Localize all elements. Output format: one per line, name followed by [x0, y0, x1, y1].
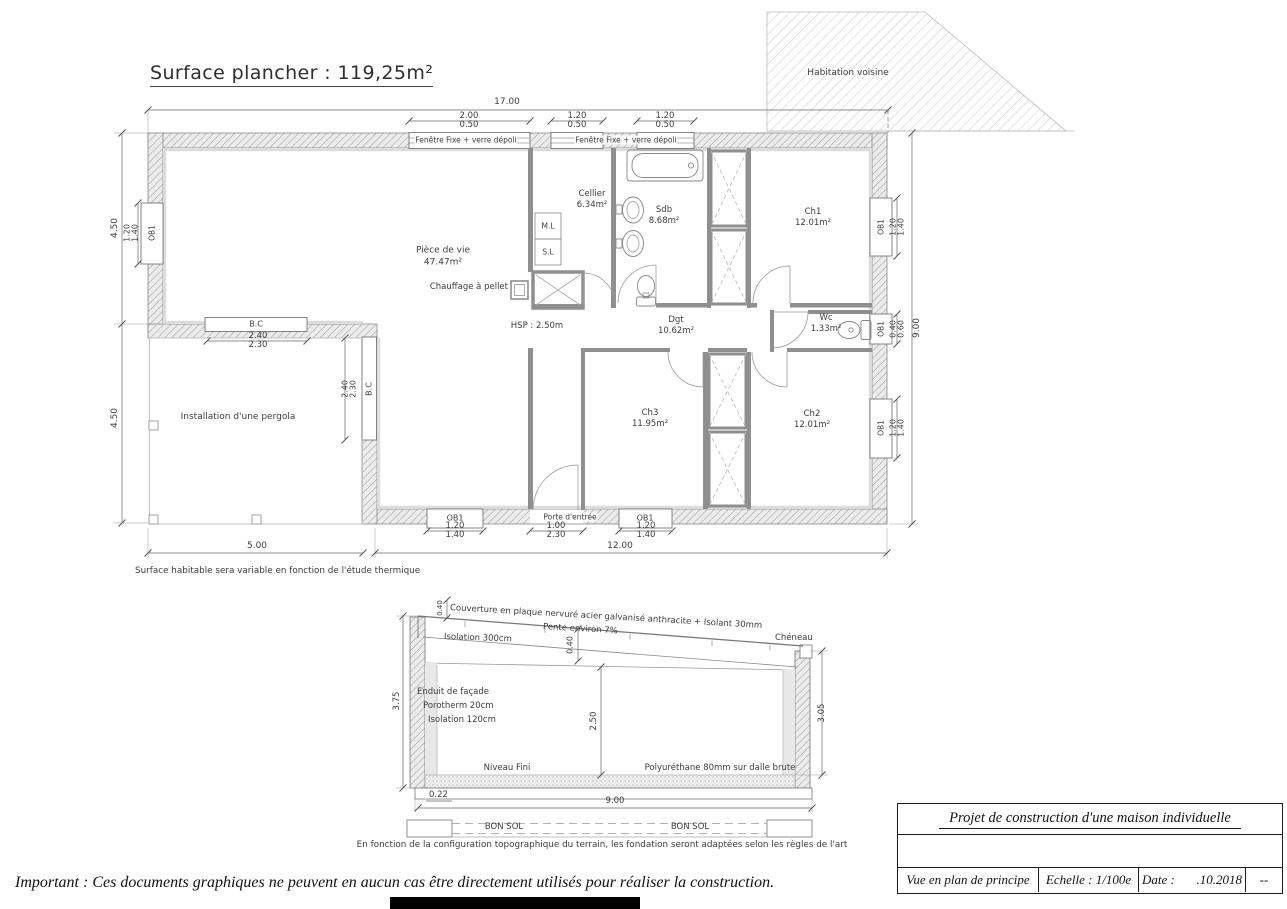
ob1-right-ch2-label: OB1 — [877, 420, 886, 436]
floor-plan-sheet: Surface plancher : 119,25m² Habitation v… — [0, 0, 1287, 909]
wc-door-swing — [772, 312, 808, 348]
redaction-bar — [390, 897, 640, 909]
hsp-label: HSP : 2.50m — [511, 321, 563, 331]
ob1-right-ch1-label: OB1 — [877, 219, 886, 235]
date-cell: Date : .10.2018 — [1138, 868, 1245, 892]
section-bonsol-right: BON SOL — [671, 822, 709, 832]
cellier-door-swing — [583, 273, 615, 305]
room-cellier: Cellier6.34m² — [577, 189, 608, 211]
footing-right — [767, 820, 812, 837]
bc-top-label: B.C — [249, 320, 263, 329]
important-note: Important : Ces documents graphiques ne … — [15, 874, 774, 892]
window-label-2: Fenêtre Fixe + verre dépoli — [574, 136, 677, 145]
closets — [709, 151, 747, 506]
room-piece-de-vie: Pièce de vie47.47m² — [416, 245, 470, 268]
gutter — [800, 645, 812, 658]
dim-left-lower: 4.50 — [110, 408, 120, 428]
dim-front-door: 1.002.30 — [547, 522, 566, 540]
dim-window-3: 1.200.50 — [656, 112, 675, 130]
room-ch2: Ch212.01m² — [794, 409, 830, 431]
door-swings — [533, 265, 808, 510]
page-title: Surface plancher : 119,25m² — [150, 62, 433, 87]
section-note: En fonction de la configuration topograp… — [357, 840, 848, 850]
plan-note: Surface habitable sera variable en fonct… — [135, 566, 420, 576]
dryer-label: S.L — [542, 248, 553, 257]
toilet-sdb — [637, 276, 656, 307]
room-ch1: Ch112.01m² — [795, 207, 831, 229]
dim-right-ch2: 1.201.40 — [890, 419, 907, 437]
section-dim-width: 9.00 — [606, 796, 625, 806]
neighbor-label: Habitation voisine — [807, 68, 888, 78]
project-title: Projet de construction d'une maison indi… — [939, 810, 1241, 829]
dim-left-upper: 4.50 — [110, 218, 120, 238]
section-bonsol-left: BON SOL — [485, 822, 523, 832]
pellet-stove — [511, 281, 528, 299]
dim-left-window: 1.201.40 — [124, 224, 141, 242]
section-dim-interior-height: 2.50 — [589, 712, 599, 731]
section-dim-roof-edge: 0.40 — [436, 600, 444, 616]
section-wall-label-1: Enduit de façade — [417, 687, 489, 697]
scale-cell: Echelle : 1/100e — [1038, 868, 1138, 892]
dim-window-1: 2.000.50 — [460, 112, 479, 130]
pellet-stove-label: Chauffage à pellet — [420, 282, 508, 292]
bathtub — [627, 150, 703, 181]
ch3-door-swing — [668, 352, 703, 387]
pergola-label: Installation d'une pergola — [181, 412, 296, 422]
ob1-right-wc-label: OB1 — [877, 321, 886, 337]
window-label-1: Fenêtre Fixe + verre dépoli — [414, 136, 517, 145]
title-block-blank-row — [898, 834, 1282, 867]
title-block-info-row: Vue en plan de principe Echelle : 1/100e… — [898, 867, 1282, 892]
section-poly-label: Polyuréthane 80mm sur dalle brute — [645, 763, 796, 773]
dim-bottom-right: 12.00 — [607, 541, 633, 551]
pergola-outline — [149, 338, 363, 524]
dim-right-wc: 0.400.60 — [890, 320, 907, 338]
dim-top-total: 17.00 — [494, 97, 520, 107]
view-name-cell: Vue en plan de principe — [898, 868, 1038, 892]
dim-window-2: 1.200.50 — [568, 112, 587, 130]
section-wall-label-2: Porotherm 20cm — [423, 701, 494, 711]
dim-right-ch1: 1.201.40 — [890, 218, 907, 236]
front-door-swing — [533, 465, 578, 510]
dim-bottom-ob1-right: 1.201.40 — [637, 522, 656, 540]
ob1-left-label: OB1 — [148, 225, 157, 241]
section-niveau-label: Niveau Fini — [484, 763, 531, 773]
front-door-label: Porte d'entrée — [542, 513, 597, 522]
ch1-door-swing — [753, 266, 790, 303]
revision-cell: -- — [1245, 868, 1282, 892]
section-wall-label-3: Isolation 120cm — [428, 715, 496, 725]
ch2-door-swing — [752, 352, 787, 387]
section-dim-right-height: 3.05 — [817, 704, 827, 723]
sink-1 — [616, 197, 644, 223]
dim-bc-right: 2.402.30 — [342, 380, 359, 398]
dim-right-total: 9.00 — [912, 318, 922, 338]
section-dim-left-height: 3.75 — [392, 692, 402, 711]
room-sdb: Sdb8.68m² — [649, 205, 680, 227]
footing-left — [407, 820, 452, 837]
dim-bc-top: 2.402.30 — [249, 332, 268, 350]
section-gutter-label: Chéneau — [775, 633, 813, 643]
room-wc: Wc1.33m² — [811, 313, 842, 335]
date-label: Date : — [1142, 872, 1175, 888]
dim-bottom-left: 5.00 — [247, 541, 267, 551]
bc-right-label: B.C — [365, 382, 374, 396]
sink-2 — [616, 231, 644, 257]
room-dgt: Dgt10.62m² — [658, 315, 694, 337]
washing-machine-label: M.L — [541, 222, 554, 231]
room-ch3: Ch311.95m² — [632, 408, 668, 430]
toilet-wc — [838, 321, 871, 340]
date-value: .10.2018 — [1197, 872, 1243, 888]
title-block: Projet de construction d'une maison indi… — [897, 803, 1283, 894]
section-dim-roof-thickness: 0.40 — [566, 636, 575, 654]
title-block-project-row: Projet de construction d'une maison indi… — [898, 804, 1282, 834]
floor-finish — [425, 775, 795, 788]
dim-bottom-ob1-left: 1.201.40 — [446, 522, 465, 540]
section-dim-slab: 0.22 — [429, 790, 448, 800]
